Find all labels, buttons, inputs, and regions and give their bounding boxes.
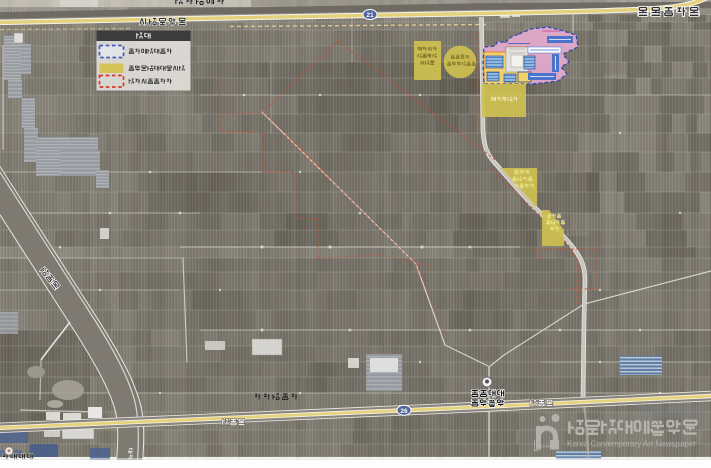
svg-text:21: 21 bbox=[366, 12, 374, 19]
svg-text:Korea Contemporary Art Newspap: Korea Contemporary Art Newspaper bbox=[567, 440, 696, 449]
svg-text:KCAN: KCAN bbox=[540, 444, 552, 449]
svg-text:kakao: kakao bbox=[604, 71, 627, 81]
svg-text:26: 26 bbox=[400, 408, 408, 415]
svg-text:kakao: kakao bbox=[566, 228, 589, 238]
